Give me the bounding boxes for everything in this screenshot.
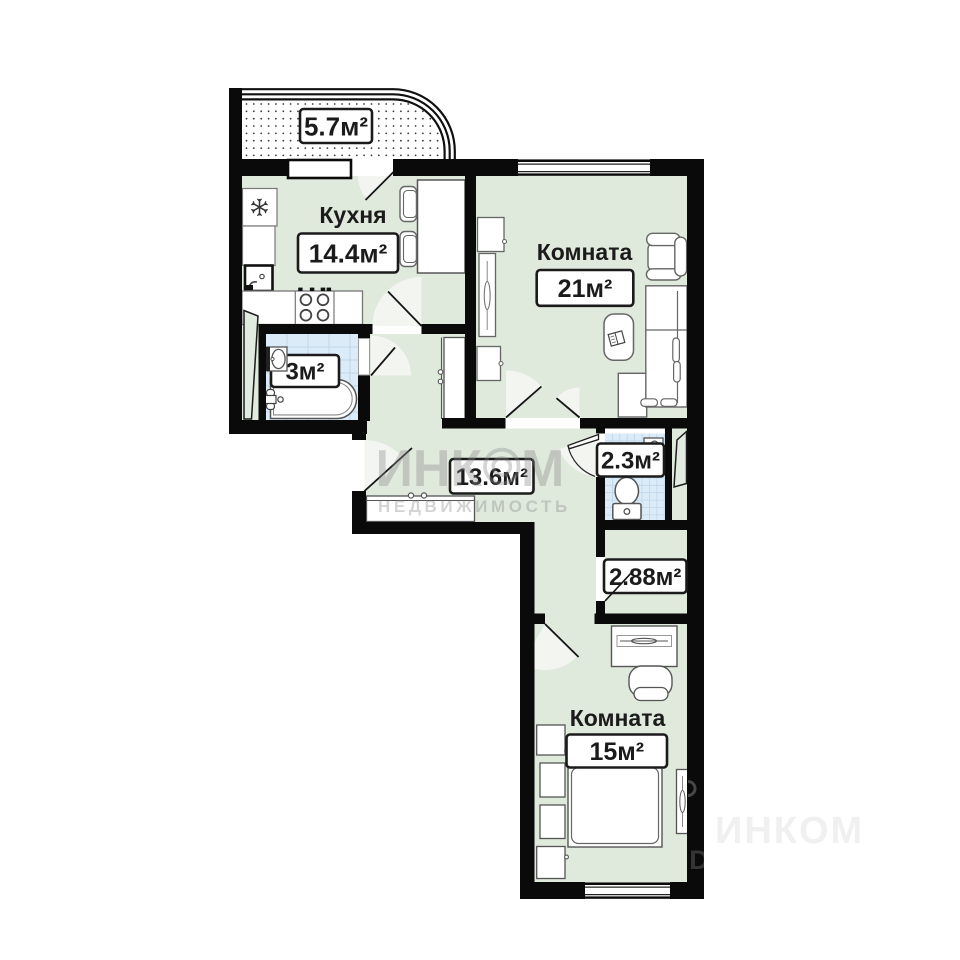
svg-text:Комната: Комната — [537, 239, 633, 265]
svg-text:Кухня: Кухня — [319, 202, 386, 228]
svg-text:3м²: 3м² — [285, 359, 324, 386]
svg-text:21м²: 21м² — [558, 275, 613, 303]
svg-text:НЕДВИЖИМОСТЬ: НЕДВИЖИМОСТЬ — [378, 497, 571, 516]
svg-text:ИНК: ИНК — [376, 440, 483, 498]
svg-text:14.4м²: 14.4м² — [309, 238, 388, 268]
svg-text:15м²: 15м² — [589, 738, 644, 766]
svg-text:М: М — [521, 440, 564, 498]
svg-text:2.3м²: 2.3м² — [601, 448, 660, 475]
svg-text:Комната: Комната — [570, 705, 666, 731]
svg-text:5.7м²: 5.7м² — [304, 111, 368, 141]
svg-text:2.88м²: 2.88м² — [609, 564, 681, 591]
svg-text:ИНКОМ: ИНКОМ — [715, 810, 864, 852]
svg-text:D: D — [689, 845, 709, 875]
